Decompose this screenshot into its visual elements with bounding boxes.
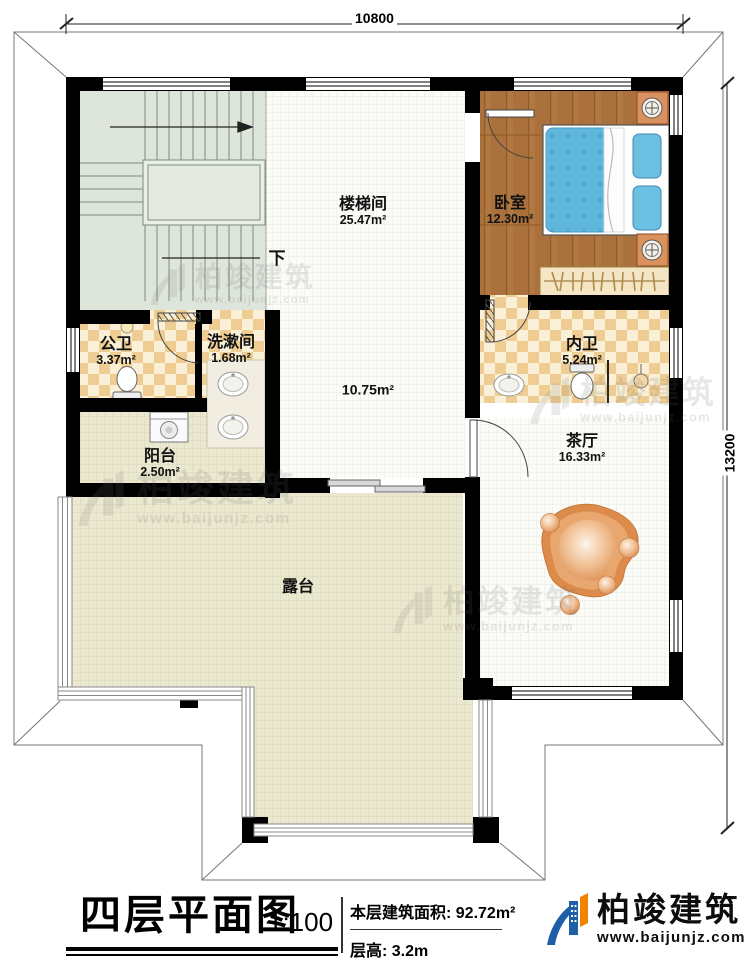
title-divider [341,897,343,953]
watermark: 柏竣建筑 www.baijunjz.com [146,260,315,308]
watermark-company: 柏竣建筑 [137,470,297,507]
washing-machine-icon [150,412,188,442]
watermark-logo-icon [525,373,573,427]
company-logo-icon [543,891,591,949]
watermark-site: www.baijunjz.com [443,619,579,633]
title-block: 四层平面图 1:100 本层建筑面积: 92.72m² 层高: 3.2m 柏竣建… [0,885,750,958]
watermark-site: www.baijunjz.com [580,410,716,424]
company-website: www.baijunjz.com [597,929,746,946]
watermark-company: 柏竣建筑 [195,263,315,291]
watermark-company: 柏竣建筑 [580,376,716,407]
title-underline-thin [66,954,338,956]
plan-title: 四层平面图 [80,895,300,936]
title-underline [66,947,338,951]
info-separator [350,929,502,930]
watermark: 柏竣建筑 www.baijunjz.com [525,373,716,427]
watermark: 柏竣建筑 www.baijunjz.com [388,582,579,636]
dimension-right: 13200 [721,431,737,476]
floor-area-info: 本层建筑面积: 92.72m² [350,899,515,923]
dimension-top: 10800 [352,10,397,26]
company-name: 柏竣建筑 [597,891,746,929]
company-logo: 柏竣建筑 www.baijunjz.com [543,891,746,949]
watermark-site: www.baijunjz.com [195,293,315,306]
wardrobe [540,267,669,296]
plan-scale: 1:100 [268,907,333,938]
floor-plan-canvas: 10800 13200 柏竣建筑 www.baijunjz.com 柏竣建筑 w… [0,0,750,958]
watermark-company: 柏竣建筑 [443,585,579,616]
watermark: 柏竣建筑 www.baijunjz.com [72,466,297,530]
watermark-logo-icon [72,466,128,530]
floor-height-info: 层高: 3.2m [350,937,428,958]
watermark-site: www.baijunjz.com [137,510,297,527]
watermark-logo-icon [388,582,436,636]
bed [543,125,669,235]
watermark-logo-icon [146,260,188,308]
